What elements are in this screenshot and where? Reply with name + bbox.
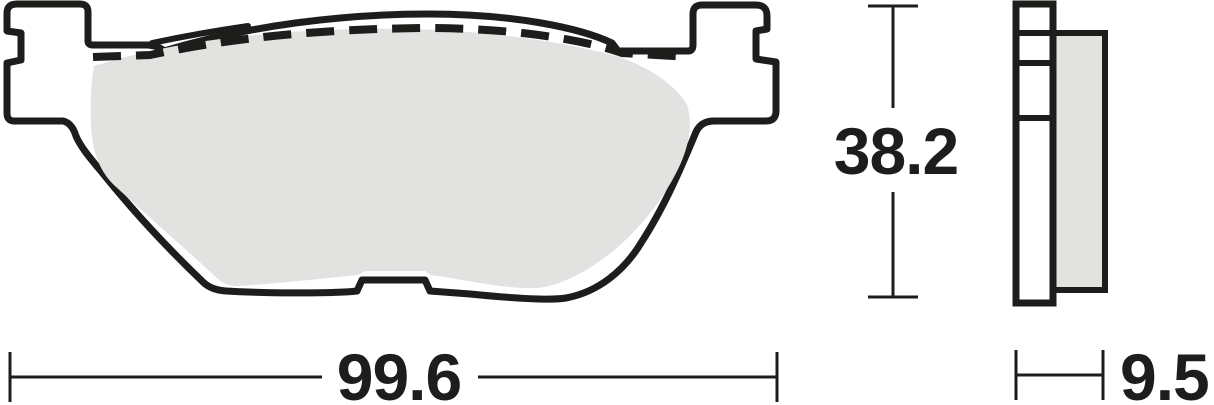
dimension-label-height: 38.2 — [834, 114, 958, 188]
front-view — [7, 4, 776, 299]
side-view — [1013, 4, 1105, 303]
brake-pad-technical-drawing: 99.6 38.2 9.5 — [0, 0, 1214, 405]
dimension-label-width: 99.6 — [337, 340, 461, 405]
side-backing-plate — [1016, 4, 1053, 303]
brake-pad-diagram-canvas: 99.6 38.2 9.5 — [0, 0, 1214, 405]
dimension-thickness — [1016, 350, 1103, 400]
dimension-label-thickness: 9.5 — [1120, 340, 1209, 405]
side-friction-material — [1053, 33, 1105, 290]
